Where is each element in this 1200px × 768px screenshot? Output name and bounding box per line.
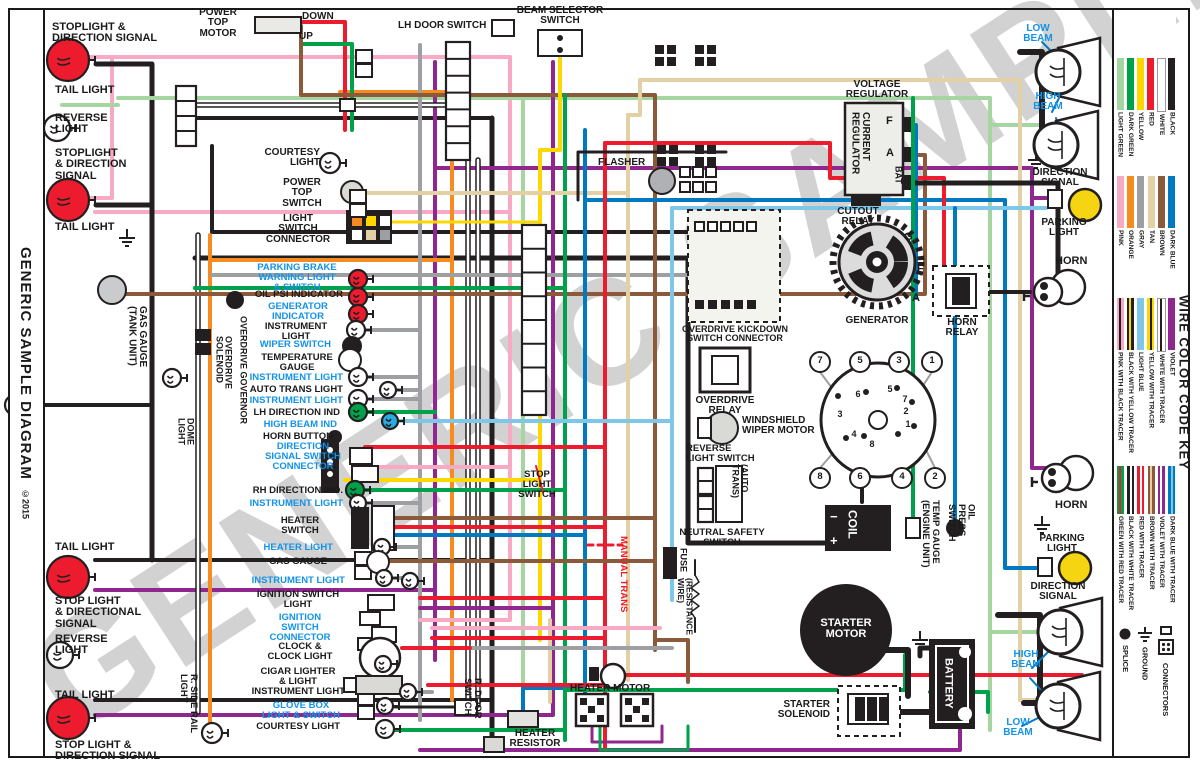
diagram-title: GENERIC SAMPLE DIAGRAM (17, 247, 34, 480)
sq (580, 715, 587, 722)
wire-purple (1032, 198, 1048, 468)
key-entry: DARK GREEN (1126, 58, 1134, 157)
bulb-terminal (367, 373, 373, 381)
rect (590, 668, 598, 680)
tail-light-bulb (47, 556, 89, 598)
ground-icon (1034, 516, 1050, 533)
key-entry: BROWN WITH TRACER (1147, 466, 1155, 610)
sq (642, 698, 649, 705)
circ (958, 707, 972, 721)
sq (667, 45, 676, 54)
wire-pink (80, 57, 112, 198)
rect (196, 330, 210, 340)
key-entry: VIOLET WITH TRACER (1157, 466, 1165, 610)
sq (693, 182, 703, 192)
key-swatch-tracer (1160, 466, 1162, 514)
parking-light-glyph (1069, 189, 1101, 221)
key-swatch (1168, 58, 1175, 110)
ground-icon (119, 229, 135, 246)
heater-motor-glyph (601, 664, 625, 688)
dot (909, 399, 915, 405)
key-swatch-tracer (1171, 466, 1173, 514)
key-swatch (1117, 298, 1124, 350)
dot (327, 471, 333, 477)
generator-glyph-hub-center (873, 258, 882, 267)
key-entry: YELLOW WITH TRACER (1147, 298, 1155, 453)
sq (721, 222, 730, 231)
sq (657, 145, 666, 154)
sq (706, 182, 716, 192)
rect (953, 278, 969, 304)
key-group-1: DARK BLUEBROWNTANGRAYORANGEPINK (1116, 176, 1176, 269)
key-swatch-tracer (1140, 466, 1142, 514)
sq (707, 157, 716, 166)
voltage-regulator-box (845, 103, 903, 195)
rect (356, 64, 372, 77)
key-entry-label: LIGHT GREEN (1116, 112, 1123, 157)
generator-indicator-bulb-terminal (367, 310, 373, 318)
key-swatch (1157, 298, 1166, 352)
sq (366, 216, 376, 226)
key-symbol-ground: GROUND (1136, 626, 1154, 716)
sq (747, 300, 756, 309)
rect (903, 176, 910, 189)
key-swatch (1137, 466, 1144, 514)
rect (196, 344, 210, 354)
key-entry-label: GRAY (1137, 230, 1144, 248)
key-entry: TAN (1147, 176, 1155, 269)
sq (380, 230, 390, 240)
dot (895, 431, 901, 437)
key-entry: PINK WITH BLACK TRACER (1116, 298, 1124, 453)
rect (1048, 190, 1062, 208)
sq (695, 145, 704, 154)
sq (642, 715, 649, 722)
sq (669, 157, 678, 166)
key-entry: PINK (1116, 176, 1124, 269)
sq (695, 157, 704, 166)
key-entry-label: RED (1147, 112, 1154, 126)
sq (695, 300, 704, 309)
sq (695, 57, 704, 66)
horn-glyph-dot (1040, 293, 1048, 301)
key-swatch (1147, 58, 1154, 110)
key-entry-label: BLACK WITH YELLOW TRACER (1127, 352, 1134, 453)
coil-box (826, 506, 890, 550)
sq (680, 182, 690, 192)
reverse-light-bulb-terminal (73, 651, 79, 659)
headlamp (1038, 610, 1082, 654)
key-entry: BLACK WITH YELLOW TRACER (1126, 298, 1134, 453)
sq (708, 300, 717, 309)
key-symbol-label: GROUND (1140, 647, 1149, 680)
sq (747, 222, 756, 231)
key-entry: DARK BLUE WITH TRACER (1168, 466, 1176, 610)
rect (880, 698, 888, 720)
horn-glyph (1034, 278, 1062, 306)
bulb-terminal (396, 386, 402, 394)
bulb-terminal (392, 574, 398, 582)
key-entry-label: GREEN WITH RED TRACER (1117, 516, 1124, 603)
key-swatch (1168, 466, 1175, 514)
key-symbol-label: CONNECTORS (1161, 663, 1170, 716)
key-swatch (1168, 298, 1175, 350)
key-swatch (1148, 176, 1155, 228)
reverse-light-bulb-terminal (70, 124, 76, 132)
sq (580, 698, 587, 705)
key-entry-label: RED WITH TRACER (1137, 516, 1144, 578)
tail-light-bulb (47, 179, 89, 221)
key-entry: LIGHT BLUE (1136, 298, 1144, 453)
key-entry: RED WITH TRACER (1137, 466, 1145, 610)
connector-block-icon (1159, 640, 1173, 654)
rect (712, 356, 738, 384)
key-swatch-tracer (1150, 298, 1152, 350)
reverse-switch-glyph (716, 466, 742, 522)
sq (352, 230, 362, 240)
key-swatch (1127, 176, 1134, 228)
dot (835, 393, 841, 399)
power-top-motor (255, 17, 301, 33)
key-entry-label: PINK (1117, 230, 1124, 246)
glove-box-switch-glyph (455, 700, 477, 715)
key-entry: VIOLET (1168, 298, 1176, 453)
instrument-light-bulb-terminal (365, 326, 371, 334)
wiring-diagram-page: GENERIC SAMPLE STOPLIGHT & DIRECTION SIG… (0, 0, 1200, 768)
key-swatch-tracer (1129, 298, 1131, 350)
heater-switch-glyph (352, 508, 368, 548)
key-entry: WHITE WITH TRACER (1157, 298, 1166, 453)
key-swatch (1147, 298, 1154, 350)
key-symbol-connectors: CONNECTORS (1157, 626, 1175, 716)
bulb-terminal (367, 395, 373, 403)
oil-press-glyph (946, 519, 964, 537)
key-title: WIRE COLOR CODE KEY (1177, 295, 1192, 470)
key-entry-label: PINK WITH BLACK TRACER (1116, 352, 1123, 441)
dot (863, 389, 869, 395)
sq (380, 216, 390, 226)
key-swatch (1158, 176, 1165, 228)
key-swatch (1127, 298, 1134, 350)
rect (350, 190, 366, 203)
sq (707, 145, 716, 154)
wire-black (691, 575, 699, 618)
sq (734, 222, 743, 231)
rect (344, 678, 356, 692)
headlamp (1036, 50, 1080, 94)
ignition-connector-glyph (368, 595, 394, 610)
key-entry-label: ORANGE (1127, 230, 1134, 259)
flasher-can (649, 168, 675, 194)
key-swatch (1148, 466, 1155, 514)
rect (360, 612, 380, 625)
key-swatch-tracer (1130, 466, 1132, 514)
sq (625, 715, 632, 722)
rh-direction-bulb-terminal (364, 486, 370, 494)
circ (810, 468, 830, 488)
side-rail-light-bulb-terminal (222, 729, 228, 737)
rect (903, 148, 910, 161)
sq (366, 230, 376, 240)
key-entry: WHITE (1157, 58, 1166, 157)
sq (695, 222, 704, 231)
circ (850, 352, 870, 372)
key-swatch (1158, 466, 1165, 514)
horn-glyph-terminal (1032, 477, 1038, 487)
rect (868, 698, 876, 720)
key-swatch (1127, 466, 1134, 514)
key-swatch (1117, 466, 1124, 514)
circ (892, 468, 912, 488)
key-entry-label: LIGHT BLUE (1137, 352, 1144, 392)
key-entry: BLACK (1168, 58, 1176, 157)
wire-blue (1052, 96, 1060, 112)
key-entry-label: VIOLET (1168, 352, 1175, 376)
key-entry: LIGHT GREEN (1116, 58, 1124, 157)
overdrive-governor-glyph (226, 291, 244, 309)
glove-box-bulb-terminal (393, 702, 399, 710)
sq (706, 167, 716, 177)
key-entry-label: WHITE (1158, 114, 1165, 135)
sq (680, 167, 690, 177)
key-entry: GREEN WITH RED TRACER (1116, 466, 1124, 610)
rect (698, 418, 711, 438)
key-entry: DARK BLUE (1168, 176, 1176, 269)
rect (340, 99, 355, 111)
sq (633, 706, 640, 713)
key-swatch (1117, 58, 1124, 110)
wire-red (301, 22, 345, 130)
sq (669, 145, 678, 154)
key-group-3: DARK BLUE WITH TRACERVIOLET WITH TRACERB… (1116, 466, 1176, 610)
wire-color-code-key: BLACKWHITEREDYELLOWDARK GREENLIGHT GREEN… (1112, 8, 1176, 758)
key-group-2: VIOLETWHITE WITH TRACERYELLOW WITH TRACE… (1116, 298, 1176, 453)
key-swatch-tracer (1119, 298, 1121, 350)
wiring-diagram-canvas (0, 0, 1200, 768)
headlamp (1034, 123, 1078, 167)
starter-motor-glyph (800, 584, 892, 676)
key-swatch (1137, 58, 1144, 110)
key-entry-label: YELLOW WITH TRACER (1147, 352, 1154, 428)
key-swatch (1137, 298, 1144, 350)
key-entry: ORANGE (1126, 176, 1134, 269)
heater-resistor-glyph (508, 711, 538, 727)
key-entry: RED (1147, 58, 1155, 157)
key-swatch (1137, 176, 1144, 228)
sq (707, 45, 716, 54)
rect (1038, 558, 1052, 576)
headlamp (1036, 684, 1080, 728)
high-beam-ind-bulb-terminal (398, 417, 404, 425)
key-entry-label: BLACK WITH WHITE TRACER (1127, 516, 1134, 610)
horn-glyph (1042, 464, 1070, 492)
sq (657, 157, 666, 166)
sq (588, 706, 595, 713)
circ (810, 352, 830, 372)
reverse-light-bulb (44, 115, 70, 141)
rect (903, 118, 910, 131)
tail-light-bulb (47, 39, 89, 81)
sq (708, 222, 717, 231)
dot (557, 47, 563, 53)
sq (597, 698, 604, 705)
wire-green (600, 726, 688, 750)
dot (327, 447, 333, 453)
horn-glyph-dot (1048, 468, 1056, 476)
circ (850, 468, 870, 488)
circ (922, 352, 942, 372)
key-entry: BROWN (1157, 176, 1165, 269)
sq (655, 45, 664, 54)
key-swatch (1168, 176, 1175, 228)
temp-gauge-glyph (906, 518, 920, 538)
cutout-relay-glyph (852, 196, 880, 205)
sq (655, 57, 664, 66)
rect (358, 706, 374, 719)
wire-purple (592, 726, 662, 742)
r-door-switch-glyph (484, 737, 504, 752)
wire-black (96, 64, 152, 560)
ground-icon (912, 631, 928, 648)
key-entry-label: WHITE WITH TRACER (1158, 354, 1165, 423)
horn-glyph-dot (1040, 282, 1048, 290)
key-entry-label: TAN (1148, 230, 1155, 243)
sq (695, 45, 704, 54)
key-swatch-tracer (1160, 299, 1162, 351)
sq (734, 300, 743, 309)
key-swatch (1117, 176, 1124, 228)
key-entry: YELLOW (1136, 58, 1144, 157)
dot (894, 385, 900, 391)
connector-icon (1161, 627, 1171, 634)
lh-door-switch (492, 20, 514, 36)
sq (597, 715, 604, 722)
sq (707, 57, 716, 66)
reverse-light-bulb (47, 642, 73, 668)
key-entry-label: BROWN WITH TRACER (1148, 516, 1155, 590)
key-symbol-label: SPLICE (1121, 645, 1130, 672)
key-entry: BLACK WITH WHITE TRACER (1126, 466, 1134, 610)
key-entry-label: DARK BLUE WITH TRACER (1168, 516, 1175, 603)
key-group-0: BLACKWHITEREDYELLOWDARK GREENLIGHT GREEN (1116, 58, 1176, 157)
sq (693, 167, 703, 177)
key-entry-label: BROWN (1158, 230, 1165, 256)
key-symbols: SPLICEGROUNDCONNECTORS (1116, 626, 1176, 716)
courtesy-light-bulb-terminal (340, 159, 346, 167)
horn-glyph-dot (1048, 479, 1056, 487)
dot (911, 423, 917, 429)
left-title-strip: GENERIC SAMPLE DIAGRAM ©2015 (8, 8, 45, 758)
sq (667, 57, 676, 66)
key-title-strip: WIRE COLOR CODE KEY (1176, 8, 1192, 758)
rect (352, 466, 378, 482)
tail-light-bulb (47, 697, 89, 739)
key-entry-label: DARK BLUE (1168, 230, 1175, 269)
lh-direction-bulb-terminal (367, 408, 373, 416)
dot (861, 433, 867, 439)
key-entry: GRAY (1137, 176, 1145, 269)
fuse-glyph (664, 548, 676, 578)
gas-tank-unit (98, 276, 126, 304)
key-entry-label: BLACK (1168, 112, 1175, 135)
key-symbol-splice: SPLICE (1117, 626, 1133, 716)
rect (856, 698, 864, 720)
circ (869, 411, 887, 429)
sq (625, 698, 632, 705)
circ (889, 352, 909, 372)
circ (959, 646, 971, 658)
key-swatch-tracer (1150, 466, 1152, 514)
dot (327, 459, 333, 465)
sq (721, 300, 730, 309)
dot (557, 35, 563, 41)
key-swatch-tracer (1119, 466, 1121, 514)
parking-light-glyph (1059, 552, 1091, 584)
dome-light-bulb-terminal (181, 374, 187, 382)
key-swatch (1127, 58, 1134, 110)
key-entry-label: DARK GREEN (1127, 112, 1134, 156)
splice-icon (1120, 629, 1131, 640)
key-entry-label: YELLOW (1137, 112, 1144, 140)
copyright: ©2015 (21, 489, 31, 519)
cigar-lighter-glyph (356, 676, 402, 694)
rect (350, 204, 366, 217)
key-swatch (1157, 58, 1166, 112)
rect (356, 50, 372, 63)
ground-icon (1138, 627, 1152, 641)
circ (925, 468, 945, 488)
key-entry-label: VIOLET WITH TRACER (1158, 516, 1165, 588)
rect (350, 448, 372, 464)
dot (843, 435, 849, 441)
